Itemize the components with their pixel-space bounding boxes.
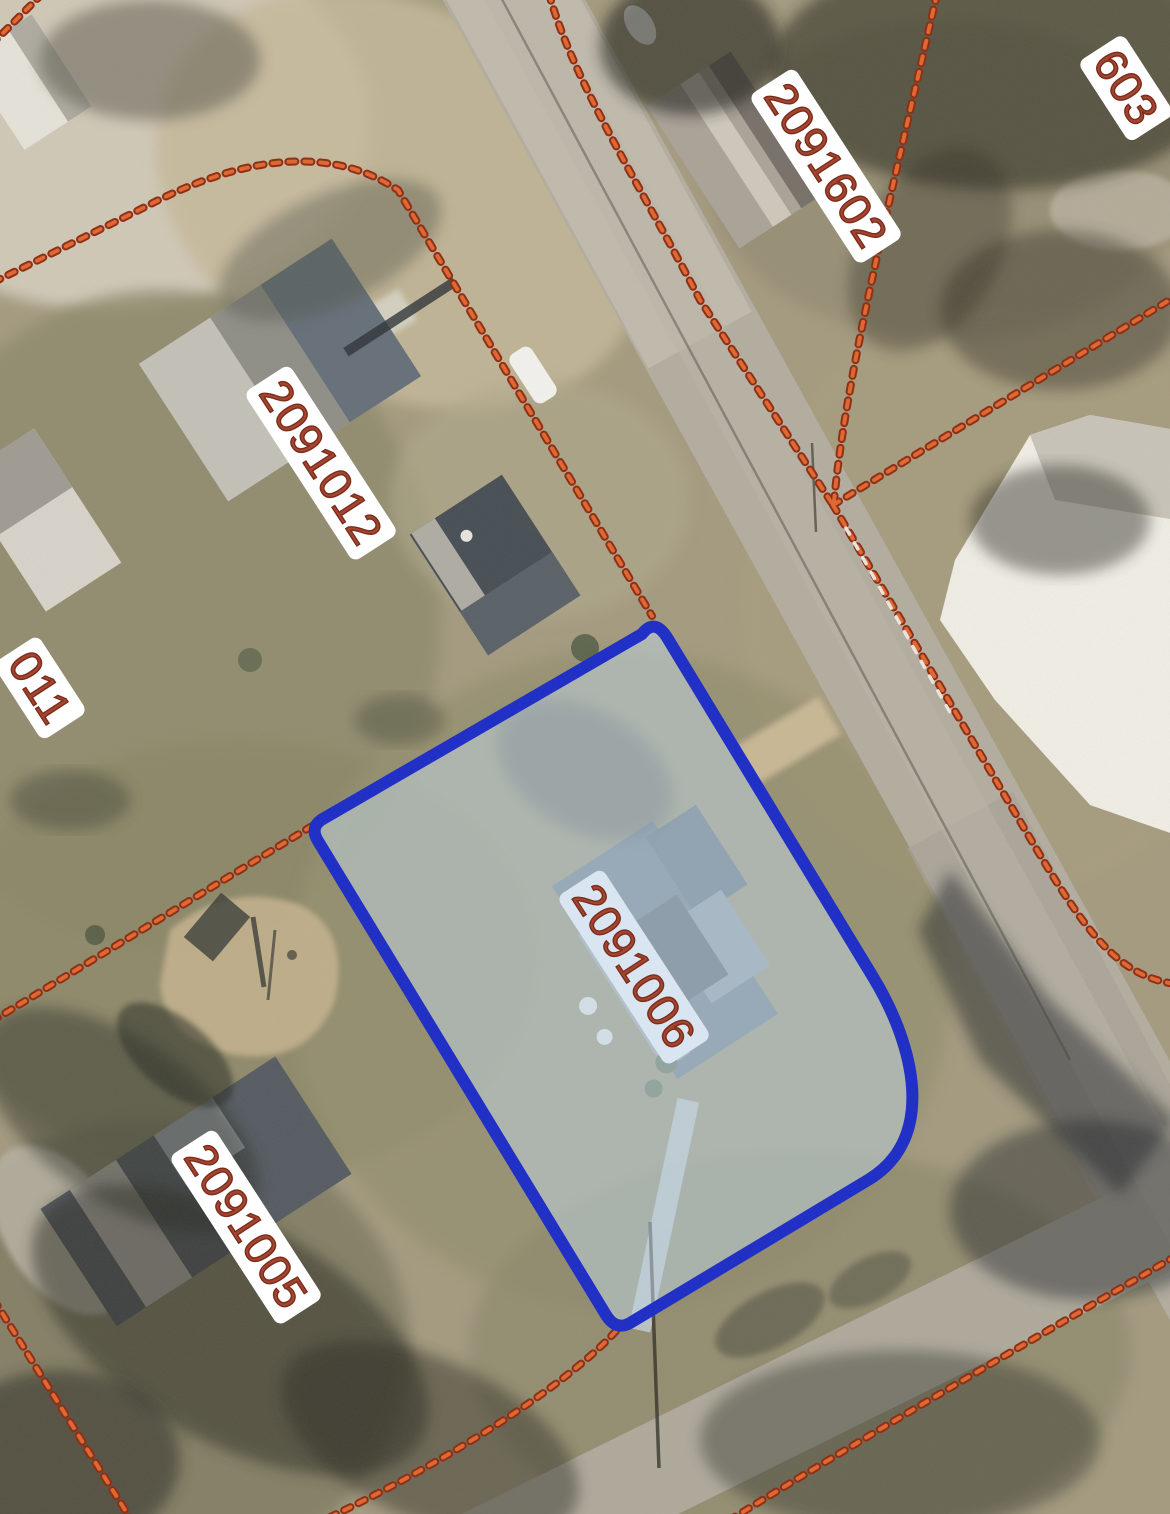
aerial-imagery — [0, 0, 1170, 1514]
map-canvas[interactable]: 603 2091602 2091012 011 2091006 2091005 — [0, 0, 1170, 1514]
